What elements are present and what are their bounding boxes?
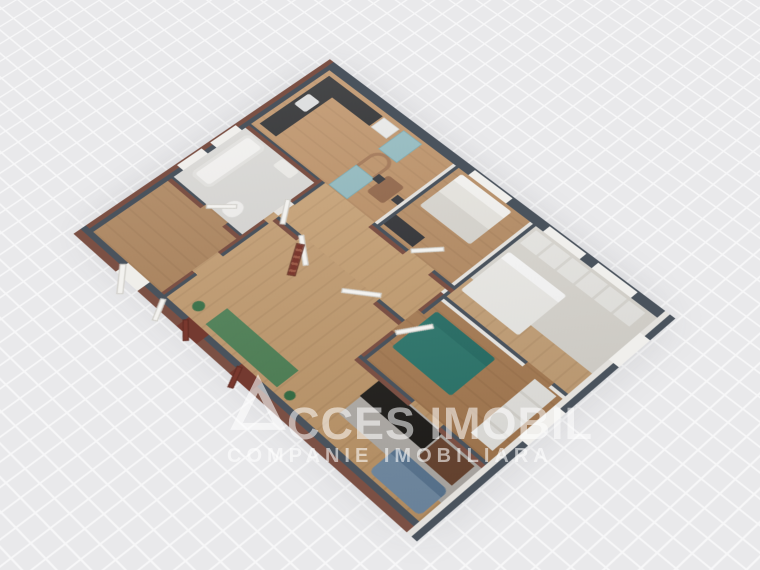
floorplan-canvas: CCES IMOBIL COMPANIE IMOBILIARA [0, 0, 760, 570]
red-window-leaf-open [183, 319, 189, 341]
apartment-3d-model [93, 70, 657, 521]
door-entry [206, 204, 237, 208]
